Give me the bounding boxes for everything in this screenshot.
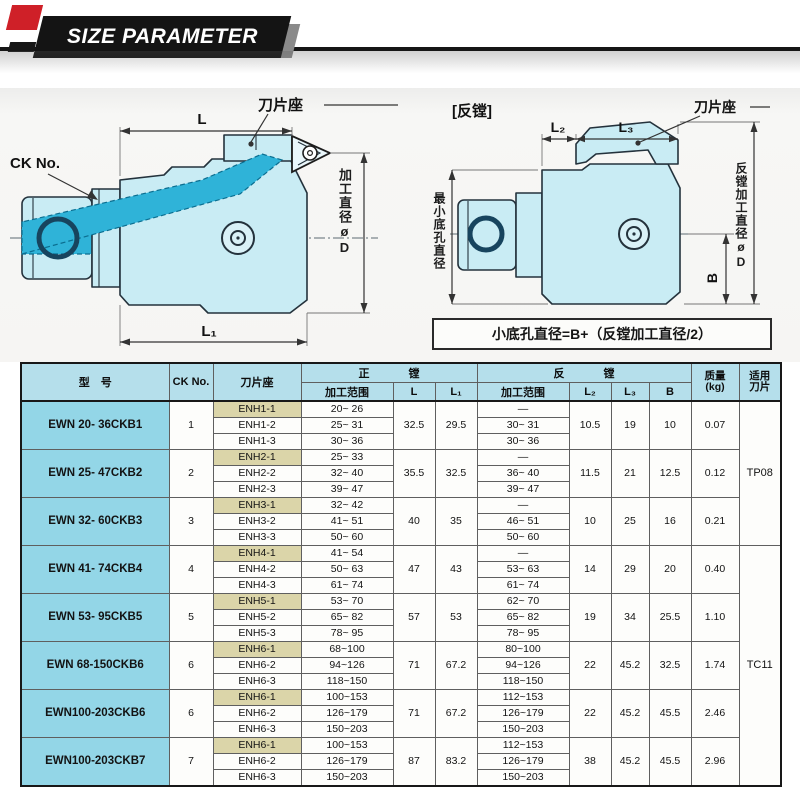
fwd-range-cell: 39~ 47 <box>301 482 393 498</box>
rev-range-cell: 150~203 <box>477 722 569 738</box>
seat-cell: ENH3-1 <box>213 498 301 514</box>
ck-no-cell: 5 <box>169 594 213 642</box>
min-bottom-hole-label: 最小底孔直径 <box>433 192 445 314</box>
rev-range-cell: 112~153 <box>477 738 569 754</box>
weight-cell: 1.10 <box>691 594 739 642</box>
header-weight: 质量 (kg) <box>691 363 739 401</box>
header-l1: L₁ <box>435 383 477 402</box>
rev-range-cell: — <box>477 401 569 418</box>
formula-text: 小底孔直径=B+（反镗加工直径/2） <box>492 324 712 344</box>
fwd-range-cell: 94~126 <box>301 658 393 674</box>
rev-range-cell: — <box>477 498 569 514</box>
dimension-rev-diameter <box>680 122 760 304</box>
l1-cell: 67.2 <box>435 642 477 690</box>
l-cell: 57 <box>393 594 435 642</box>
fwd-range-cell: 20~ 26 <box>301 401 393 418</box>
dim-l2-label: L₂ <box>551 119 566 135</box>
model-cell: EWN 20- 36CKB1 <box>21 401 169 450</box>
model-cell: EWN 32- 60CKB3 <box>21 498 169 546</box>
l2-cell: 38 <box>569 738 611 787</box>
l3-cell: 19 <box>611 401 649 450</box>
seat-cell: ENH1-1 <box>213 401 301 418</box>
seat-cell: ENH6-3 <box>213 674 301 690</box>
b-cell: 25.5 <box>649 594 691 642</box>
header-forward-boring: 正 镗 <box>301 363 477 383</box>
ck-no-callout: CK No. <box>10 155 98 200</box>
reverse-title: [反镗] <box>452 102 492 120</box>
header-l: L <box>393 383 435 402</box>
seat-cell: ENH6-2 <box>213 658 301 674</box>
fwd-range-cell: 41~ 54 <box>301 546 393 562</box>
ck-no-cell: 7 <box>169 738 213 787</box>
fwd-range-cell: 126~179 <box>301 754 393 770</box>
seat-cell: ENH2-1 <box>213 450 301 466</box>
l2-cell: 19 <box>569 594 611 642</box>
blade-seat-label: 刀片座 <box>258 96 303 114</box>
rev-range-cell: 36~ 40 <box>477 466 569 482</box>
fwd-range-cell: 30~ 36 <box>301 434 393 450</box>
header-reverse-boring: 反 镗 <box>477 363 691 383</box>
fwd-range-cell: 150~203 <box>301 722 393 738</box>
fwd-range-cell: 25~ 33 <box>301 450 393 466</box>
banner-area: SIZE PARAMETER <box>0 0 800 88</box>
l3-cell: 29 <box>611 546 649 594</box>
seat-cell: ENH6-3 <box>213 770 301 787</box>
l1-cell: 67.2 <box>435 690 477 738</box>
seat-cell: ENH6-2 <box>213 706 301 722</box>
weight-cell: 1.74 <box>691 642 739 690</box>
fwd-range-cell: 41~ 51 <box>301 514 393 530</box>
l2-cell: 14 <box>569 546 611 594</box>
header-insert-line2: 刀片 <box>740 382 781 393</box>
l1-cell: 32.5 <box>435 450 477 498</box>
banner-shadow <box>0 51 800 81</box>
fwd-range-cell: 126~179 <box>301 706 393 722</box>
fwd-range-cell: 150~203 <box>301 770 393 787</box>
rev-range-cell: 50~ 60 <box>477 530 569 546</box>
rev-range-cell: 39~ 47 <box>477 482 569 498</box>
rev-range-cell: 46~ 51 <box>477 514 569 530</box>
insert-type-cell: TP08 <box>739 401 781 546</box>
rev-range-cell: 53~ 63 <box>477 562 569 578</box>
header-seat: 刀片座 <box>213 363 301 401</box>
l3-cell: 25 <box>611 498 649 546</box>
weight-cell: 2.46 <box>691 690 739 738</box>
ck-no-cell: 3 <box>169 498 213 546</box>
ck-no-cell: 1 <box>169 401 213 450</box>
l-cell: 71 <box>393 690 435 738</box>
fwd-range-cell: 25~ 31 <box>301 418 393 434</box>
rev-range-cell: 78~ 95 <box>477 626 569 642</box>
rev-range-cell: 80~100 <box>477 642 569 658</box>
rev-range-cell: — <box>477 450 569 466</box>
insert-type-cell: TC11 <box>739 546 781 787</box>
l-cell: 71 <box>393 642 435 690</box>
fwd-range-cell: 53~ 70 <box>301 594 393 610</box>
formula-box: 小底孔直径=B+（反镗加工直径/2） <box>432 318 772 350</box>
fwd-range-cell: 100~153 <box>301 738 393 754</box>
l1-cell: 35 <box>435 498 477 546</box>
rev-range-cell: 126~179 <box>477 706 569 722</box>
l1-cell: 53 <box>435 594 477 642</box>
l3-cell: 21 <box>611 450 649 498</box>
l3-cell: 34 <box>611 594 649 642</box>
dim-l3-label: L₃ <box>618 119 633 135</box>
b-cell: 45.5 <box>649 738 691 787</box>
tool-body <box>22 135 307 313</box>
machining-diameter-label: 加工直径øD <box>338 168 351 303</box>
header-l3: L₃ <box>611 383 649 402</box>
seat-cell: ENH6-1 <box>213 642 301 658</box>
dimension-B: B <box>688 234 734 304</box>
rev-range-cell: 126~179 <box>477 754 569 770</box>
l-cell: 32.5 <box>393 401 435 450</box>
b-cell: 20 <box>649 546 691 594</box>
seat-cell: ENH2-2 <box>213 466 301 482</box>
page: SIZE PARAMETER <box>0 0 800 800</box>
l3-cell: 45.2 <box>611 738 649 787</box>
ck-no-label: CK No. <box>10 155 60 172</box>
insert-tip <box>292 136 330 172</box>
seat-cell: ENH5-2 <box>213 610 301 626</box>
model-cell: EWN 25- 47CKB2 <box>21 450 169 498</box>
model-cell: EWN 53- 95CKB5 <box>21 594 169 642</box>
seat-cell: ENH3-2 <box>213 514 301 530</box>
fwd-range-cell: 68~100 <box>301 642 393 658</box>
fwd-range-cell: 32~ 40 <box>301 466 393 482</box>
l-cell: 87 <box>393 738 435 787</box>
dimension-L2: L₂ <box>542 119 576 166</box>
seat-cell: ENH3-3 <box>213 530 301 546</box>
rev-range-cell: 65~ 82 <box>477 610 569 626</box>
model-cell: EWN100-203CKB7 <box>21 738 169 787</box>
seat-cell: ENH4-1 <box>213 546 301 562</box>
rev-range-cell: 118~150 <box>477 674 569 690</box>
b-cell: 32.5 <box>649 642 691 690</box>
weight-cell: 2.96 <box>691 738 739 787</box>
seat-cell: ENH6-1 <box>213 690 301 706</box>
l1-cell: 29.5 <box>435 401 477 450</box>
dim-l1-label: L₁ <box>201 323 216 340</box>
header-l2: L₂ <box>569 383 611 402</box>
l2-cell: 22 <box>569 690 611 738</box>
l1-cell: 83.2 <box>435 738 477 787</box>
weight-cell: 0.21 <box>691 498 739 546</box>
model-cell: EWN 41- 74CKB4 <box>21 546 169 594</box>
rev-range-cell: 30~ 31 <box>477 418 569 434</box>
header-ck-no: CK No. <box>169 363 213 401</box>
weight-cell: 0.07 <box>691 401 739 450</box>
ck-no-cell: 6 <box>169 690 213 738</box>
l2-cell: 11.5 <box>569 450 611 498</box>
header-weight-line2: (kg) <box>692 382 739 393</box>
seat-cell: ENH1-3 <box>213 434 301 450</box>
reverse-machining-diameter-label: 反镗加工直径øD <box>735 162 747 304</box>
seat-cell: ENH4-3 <box>213 578 301 594</box>
seat-cell: ENH6-1 <box>213 738 301 754</box>
l-cell: 35.5 <box>393 450 435 498</box>
l2-cell: 22 <box>569 642 611 690</box>
fwd-range-cell: 78~ 95 <box>301 626 393 642</box>
weight-cell: 0.12 <box>691 450 739 498</box>
l-cell: 40 <box>393 498 435 546</box>
header-rev-range: 加工范围 <box>477 383 569 402</box>
b-cell: 12.5 <box>649 450 691 498</box>
header-insert: 适用 刀片 <box>739 363 781 401</box>
blade-seat-label: 刀片座 <box>694 99 736 115</box>
seat-cell: ENH5-1 <box>213 594 301 610</box>
rev-range-cell: 61~ 74 <box>477 578 569 594</box>
fwd-range-cell: 61~ 74 <box>301 578 393 594</box>
banner-red-accent <box>6 5 43 30</box>
fwd-range-cell: 50~ 60 <box>301 530 393 546</box>
l2-cell: 10 <box>569 498 611 546</box>
spec-table: 型 号 CK No. 刀片座 正 镗 反 镗 质量 (kg) 适用 刀片 加工范 <box>20 362 782 787</box>
seat-cell: ENH6-2 <box>213 754 301 770</box>
fwd-range-cell: 50~ 63 <box>301 562 393 578</box>
spec-table-section: 型 号 CK No. 刀片座 正 镗 反 镗 质量 (kg) 适用 刀片 加工范 <box>0 362 800 787</box>
header-model: 型 号 <box>21 363 169 401</box>
page-title: SIZE PARAMETER <box>67 25 258 49</box>
header-b: B <box>649 383 691 402</box>
rev-range-cell: 30~ 36 <box>477 434 569 450</box>
rev-range-cell: — <box>477 546 569 562</box>
tool-body <box>542 122 680 304</box>
seat-cell: ENH2-3 <box>213 482 301 498</box>
fwd-range-cell: 65~ 82 <box>301 610 393 626</box>
l-cell: 47 <box>393 546 435 594</box>
fwd-range-cell: 118~150 <box>301 674 393 690</box>
l3-cell: 45.2 <box>611 642 649 690</box>
header-fwd-range: 加工范围 <box>301 383 393 402</box>
dim-l-label: L <box>197 111 206 128</box>
rev-range-cell: 112~153 <box>477 690 569 706</box>
diagrams-section: L L₁ CK No. <box>0 88 800 362</box>
fwd-range-cell: 100~153 <box>301 690 393 706</box>
seat-cell: ENH5-3 <box>213 626 301 642</box>
fwd-range-cell: 32~ 42 <box>301 498 393 514</box>
rev-range-cell: 150~203 <box>477 770 569 787</box>
weight-cell: 0.40 <box>691 546 739 594</box>
model-cell: EWN100-203CKB6 <box>21 690 169 738</box>
seat-cell: ENH6-3 <box>213 722 301 738</box>
ck-no-cell: 4 <box>169 546 213 594</box>
rev-range-cell: 94~126 <box>477 658 569 674</box>
model-cell: EWN 68-150CKB6 <box>21 642 169 690</box>
b-cell: 45.5 <box>649 690 691 738</box>
b-cell: 16 <box>649 498 691 546</box>
l2-cell: 10.5 <box>569 401 611 450</box>
dim-b-label: B <box>704 273 720 283</box>
reverse-boring-diagram: [反镗] <box>440 94 770 318</box>
ck-no-cell: 2 <box>169 450 213 498</box>
l1-cell: 43 <box>435 546 477 594</box>
reverse-title-label: [反镗] <box>452 102 492 120</box>
seat-cell: ENH4-2 <box>213 562 301 578</box>
seat-cell: ENH1-2 <box>213 418 301 434</box>
rev-range-cell: 62~ 70 <box>477 594 569 610</box>
l3-cell: 45.2 <box>611 690 649 738</box>
b-cell: 10 <box>649 401 691 450</box>
ck-no-cell: 6 <box>169 642 213 690</box>
